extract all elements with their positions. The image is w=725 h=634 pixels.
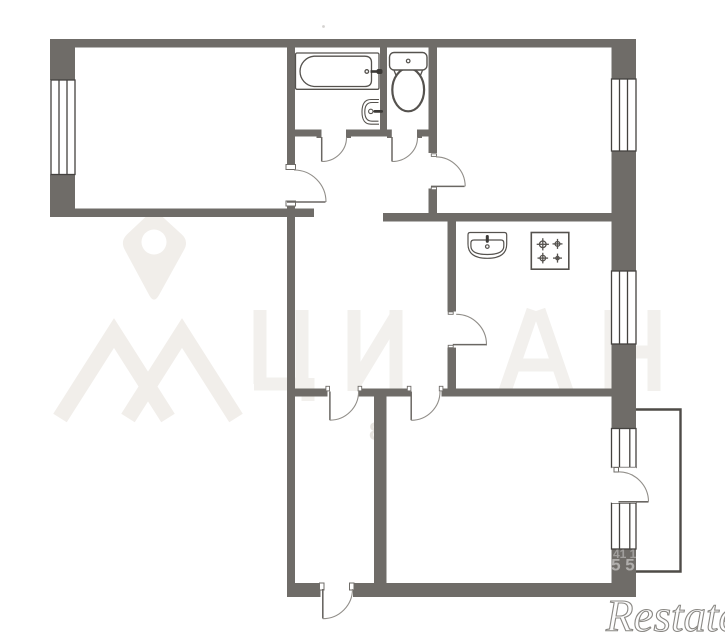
svg-text:Restate: Restate: [605, 591, 725, 634]
svg-text:0-5 5: 0-5 5: [596, 556, 635, 575]
